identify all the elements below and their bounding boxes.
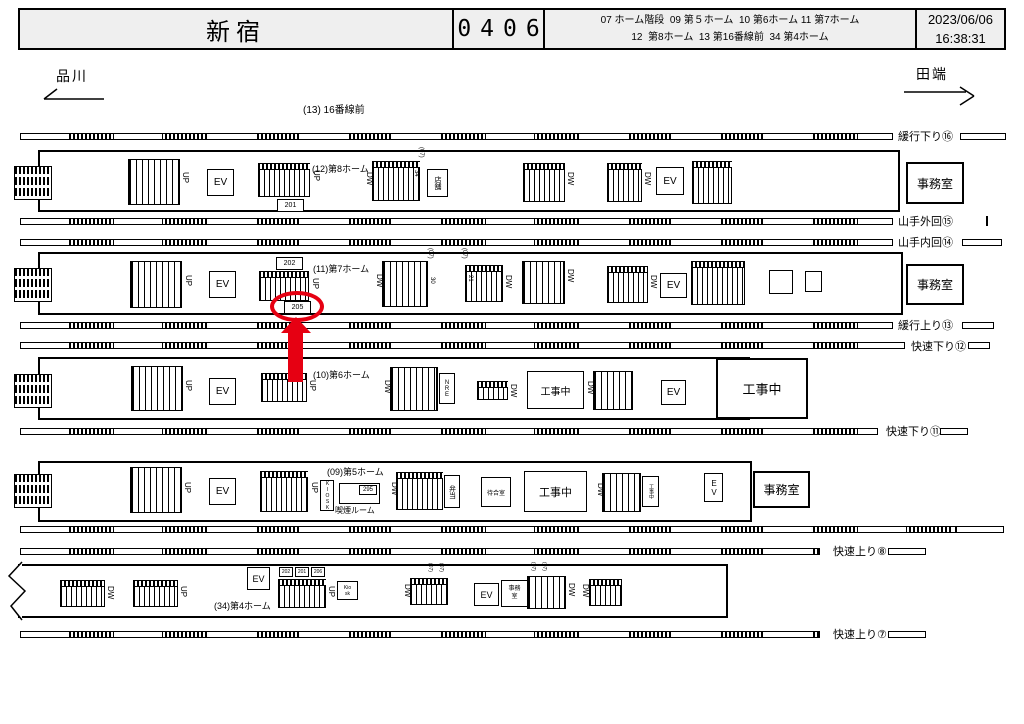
elevator-box: EV (209, 271, 236, 298)
legend-line-1: 07 ホーム階段 09 第５ホーム 10 第6ホーム 11 第7ホーム (601, 12, 860, 29)
board-number-202: 202 (276, 257, 303, 270)
escalator-icon (607, 266, 648, 303)
equipment-box (769, 270, 793, 294)
down-label: DW (106, 586, 114, 599)
escalator-number-21: 21 (467, 275, 473, 282)
track-14-label: 山手内回⑭ (898, 234, 953, 250)
up-label: UP (311, 278, 319, 289)
track-11 (20, 428, 878, 435)
highlight-arrow-head (281, 317, 311, 333)
side-stairs-icon (14, 474, 52, 508)
left-direction-label: 品川 (56, 66, 88, 86)
stair-number-30: 30 (429, 277, 435, 284)
legend-box: 07 ホーム階段 09 第５ホーム 10 第6ホーム 11 第7ホーム 12 第… (545, 10, 915, 48)
up-label: UP (179, 586, 187, 597)
track-8-label: 快速上り⑧ (833, 543, 887, 559)
legend-line-2: 12 第8ホーム 13 第16番線前 34 第4ホーム (631, 29, 828, 46)
stairs-icon (128, 159, 180, 205)
escalator-icon (278, 579, 326, 608)
station-map-screen: 新宿 0406 07 ホーム階段 09 第５ホーム 10 第6ホーム 11 第7… (0, 0, 1024, 724)
elevator-box: EV (209, 478, 236, 505)
stairs-icon (130, 467, 182, 513)
stairs-icon (382, 261, 428, 307)
escalator-icon (607, 163, 642, 202)
shop-box: 店舗 (427, 169, 448, 197)
down-label: DW (566, 172, 574, 185)
right-direction-label: 田端 (916, 64, 948, 84)
stair-code-tag: (07) (418, 147, 424, 158)
track-12 (20, 342, 905, 349)
elevator-box: EV (660, 273, 687, 298)
platform-8-name: (12)第8ホーム (312, 162, 369, 175)
stairs-icon (390, 367, 438, 411)
stair-code-tag: (07) (461, 248, 467, 259)
escalator-icon (691, 261, 745, 305)
elevator-box: EV (474, 583, 499, 606)
escalator-icon (477, 381, 508, 400)
track-7 (20, 631, 820, 638)
header-bar: 新宿 0406 07 ホーム階段 09 第５ホーム 10 第6ホーム 11 第7… (18, 8, 1006, 50)
track-15-end (986, 216, 988, 226)
stair-code-tag: (07) (427, 563, 432, 572)
office-box: 事務室 (906, 264, 964, 305)
escalator-icon (523, 163, 565, 202)
track-15 (20, 218, 893, 225)
station-title: 新宿 (20, 10, 452, 48)
track-13-end (962, 322, 994, 329)
highlight-arrow-shaft (288, 332, 303, 382)
track-16-end (960, 133, 1006, 140)
track-7-label: 快速上り⑦ (833, 626, 887, 642)
elevator-box: EV (209, 378, 236, 405)
track-14-end (962, 239, 1002, 246)
platform-break-icon (6, 561, 30, 621)
track-12-label: 快速下り⑫ (911, 338, 966, 354)
elevator-box: EV (207, 169, 234, 196)
construction-box: 工事中 (527, 371, 584, 409)
track-8 (20, 548, 820, 555)
down-label: DW (649, 275, 657, 288)
area-label-16banse: (13) 16番線前 (303, 101, 365, 116)
up-label: UP (181, 172, 189, 183)
track-8-end (888, 548, 926, 555)
up-label: UP (308, 380, 316, 391)
side-stairs-icon (14, 166, 52, 200)
area-code-34: 34 (413, 170, 419, 177)
down-label: DW (643, 172, 651, 185)
stair-code-tag: (07) (438, 563, 443, 572)
equipment-box (805, 271, 822, 292)
down-label: DW (581, 584, 589, 597)
track-13-label: 緩行上り⑬ (898, 317, 953, 333)
up-label: UP (310, 482, 318, 493)
board-number-201: 201 (295, 567, 309, 577)
platform-7-name: (11)第7ホーム (313, 262, 369, 275)
down-label: DW (567, 583, 575, 596)
track-11-label: 快速下り⑪ (886, 423, 941, 439)
track-16-label: 緩行下り⑯ (898, 128, 953, 144)
date-text: 2023/06/06 (928, 10, 993, 30)
track-unlabeled (20, 526, 956, 533)
construction-box-small: 工事中 (642, 476, 659, 507)
elevator-box: EV (656, 167, 684, 195)
office-box: 事務室 (753, 471, 810, 508)
escalator-icon (589, 579, 622, 606)
down-label: DW (509, 384, 517, 397)
stairs-icon (602, 473, 641, 512)
escalator-icon (260, 471, 308, 512)
side-stairs-icon (14, 268, 52, 302)
time-text: 16:38:31 (935, 29, 986, 49)
escalator-icon (396, 472, 443, 510)
datetime-box: 2023/06/06 16:38:31 (915, 10, 1004, 48)
track-unlabeled-end (956, 526, 1004, 533)
elevator-box: EV (704, 473, 723, 502)
stairs-icon (527, 576, 566, 609)
elevator-box: EV (247, 567, 270, 590)
board-number-206: 206 (311, 567, 325, 577)
board-number-295: 295 (359, 485, 377, 495)
platform-6-name: (10)第6ホーム (313, 368, 370, 381)
track-15-label: 山手外回⑮ (898, 213, 953, 229)
escalator-icon (258, 163, 310, 197)
up-label: UP (327, 586, 335, 597)
stairs-icon (130, 261, 182, 308)
platform-5-name: (09)第5ホーム (327, 465, 384, 478)
escalator-icon (410, 578, 448, 605)
escalator-icon (133, 580, 178, 607)
up-label: UP (184, 275, 192, 286)
waiting-room-box: 待合室 (481, 477, 511, 507)
smoking-room-label: 喫煙ルーム (335, 505, 375, 516)
nre-box: NRE (439, 373, 455, 404)
kiosk-box: KIOSK (320, 480, 334, 511)
stairs-icon (131, 366, 183, 411)
down-label: DW (504, 275, 512, 288)
escalator-icon (465, 265, 503, 302)
left-arrow-icon (42, 86, 106, 102)
office-box-small: 事務 室 (501, 580, 528, 607)
kiosk-box: Kio sk (337, 581, 358, 600)
construction-box: 工事中 (524, 471, 587, 512)
escalator-icon (692, 161, 732, 204)
up-label: UP (184, 380, 192, 391)
construction-box-large: 工事中 (716, 358, 808, 419)
stair-code-tag: (07) (541, 562, 546, 571)
track-13 (20, 322, 893, 329)
up-label: UP (183, 482, 191, 493)
track-16 (20, 133, 893, 140)
platform-4-name: (34)第4ホーム (214, 599, 271, 612)
escalator-icon (372, 161, 420, 201)
bento-shop-box: 弁当 (444, 475, 460, 508)
track-12-end (968, 342, 990, 349)
board-number-201: 201 (277, 199, 304, 212)
stairs-icon (522, 261, 565, 304)
stairs-icon (593, 371, 633, 410)
elevator-box: EV (661, 380, 686, 405)
side-stairs-icon (14, 374, 52, 408)
board-number-202: 202 (279, 567, 293, 577)
down-label: DW (566, 269, 574, 282)
track-7-end (888, 631, 926, 638)
stair-code-tag: (07) (530, 562, 535, 571)
right-arrow-icon (902, 84, 980, 108)
track-14 (20, 239, 893, 246)
stair-code-tag: (07) (427, 248, 433, 259)
office-box: 事務室 (906, 162, 964, 204)
location-code: 0406 (452, 10, 545, 48)
track-11-end (940, 428, 968, 435)
escalator-icon (60, 580, 105, 607)
